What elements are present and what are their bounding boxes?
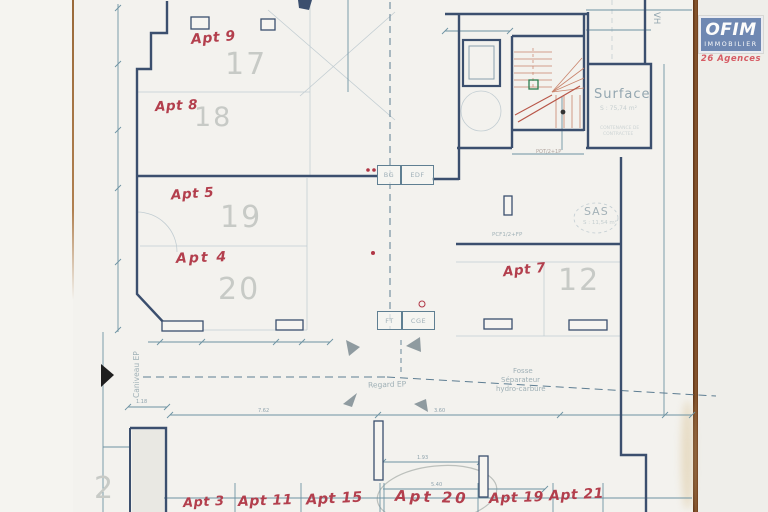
surface-note-line1: CONTENANCE DE (600, 127, 639, 132)
apt-label-19: Apt 19 (489, 490, 544, 506)
apt-label-20: Apt 20 (395, 489, 469, 507)
vh-label: VH (652, 12, 661, 24)
parking-number-12: 12 (558, 266, 600, 296)
apt-label-3: Apt 3 (183, 495, 225, 510)
apt-label-5: Apt 5 (171, 187, 215, 203)
plan-linework (0, 0, 768, 512)
wall-hatch-fill (132, 430, 164, 512)
pot-label: POT/2+1P (536, 150, 561, 155)
dim-3-60: 3.60 (434, 409, 445, 414)
parking-number-2-partial: 2 (94, 474, 115, 504)
scanned-floor-plan: Apt 9 Apt 8 Apt 5 Apt 4 Apt 7 Apt 3 Apt … (0, 0, 768, 512)
ofim-brand-text: OFIM (701, 20, 761, 40)
dim-1-93: 1.93 (417, 456, 428, 461)
apt-label-11: Apt 11 (238, 493, 293, 509)
pcf-label: PCF1/2+FP (492, 233, 522, 239)
apt-label-4: Apt 4 (176, 250, 229, 266)
regard-ep-label: Regard EP (368, 380, 406, 389)
sas-room-label: SAS (584, 206, 609, 217)
fosse-label-line3: hydro-carbure (496, 386, 546, 393)
black-triangle-marker (101, 364, 114, 387)
ofim-logo: OFIM IMMOBILIER 26 Agences (699, 16, 765, 64)
green-marker-box (529, 80, 538, 89)
ofim-logo-box: OFIM IMMOBILIER (699, 16, 763, 53)
utility-box-bg-label: BG (384, 171, 394, 179)
red-ink-ring (419, 301, 425, 307)
utility-box-cge: CGE (402, 311, 435, 330)
stair-handrail (518, 86, 580, 122)
utility-box-ft-label: FT (385, 317, 394, 325)
fosse-label-line1: Fosse (513, 368, 533, 375)
dim-1-18: 1.18 (136, 400, 147, 405)
apt-label-8: Apt 8 (155, 99, 199, 115)
dim-7-62: 7.62 (258, 409, 269, 414)
caniveau-ep-label: Caniveau EP (133, 351, 141, 398)
ofim-agences-badge: 26 Agences (699, 54, 763, 64)
apt-label-15: Apt 15 (306, 491, 363, 508)
parking-number-20: 20 (218, 275, 260, 305)
surface-room-label: Surface (594, 88, 651, 101)
ofim-immobilier-text: IMMOBILIER (701, 41, 761, 48)
utility-box-ft: FT (377, 311, 402, 330)
sketch-arrows (343, 337, 428, 412)
sas-area-value: S : 11,54 m² (583, 221, 617, 227)
elevator-shaft (463, 40, 500, 86)
apt-label-21: Apt 21 (549, 487, 605, 504)
dim-5-40: 5.40 (431, 483, 442, 488)
fosse-label-line2: Séparateur (501, 377, 540, 384)
red-ink-dots (366, 168, 376, 255)
surface-note-line2: CONTRACTEE (603, 133, 633, 138)
utility-box-edf-label: EDF (410, 171, 424, 179)
wall-piers (162, 17, 607, 497)
stairs (514, 48, 584, 128)
parking-number-19: 19 (220, 203, 262, 233)
surface-area-value: S : 75,74 m² (600, 106, 637, 112)
utility-box-bg: BG (377, 165, 401, 185)
parking-number-17: 17 (225, 50, 267, 80)
stair-dot (561, 110, 566, 115)
utility-box-cge-label: CGE (411, 317, 426, 325)
apt-label-9: Apt 9 (190, 29, 236, 47)
utility-box-edf: EDF (401, 165, 434, 185)
parking-number-18: 18 (194, 104, 232, 131)
